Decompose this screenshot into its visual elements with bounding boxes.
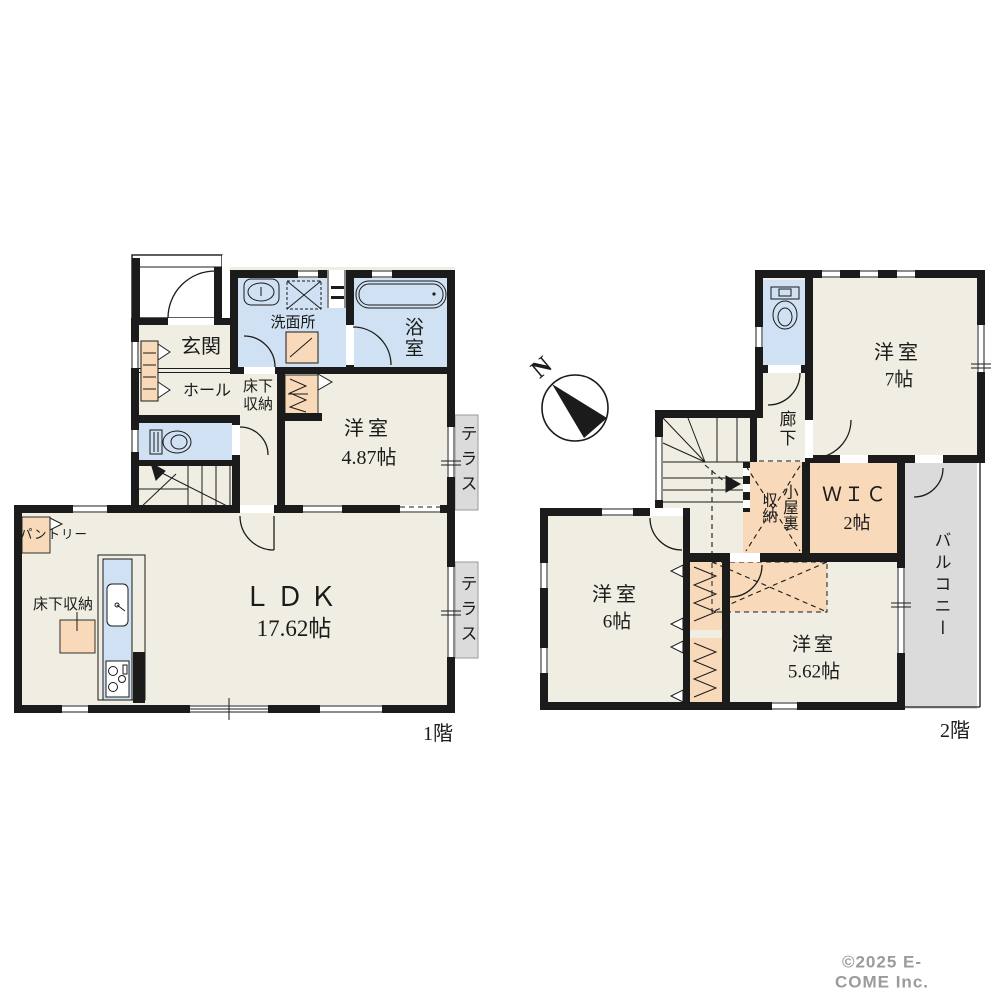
ldk-label: ＬＤＫ	[244, 581, 343, 613]
entrance-label: 玄関	[181, 335, 221, 359]
attic-storage-label: 小屋裏 収納	[757, 484, 799, 531]
floor-plan-page: 玄関 ホール 床下 収納 洗面所 浴室 洋室 4.87帖 ＬＤＫ 17.62帖 …	[0, 0, 1000, 1000]
porch	[132, 255, 222, 318]
wic-area	[802, 463, 905, 553]
bathroom-area	[348, 278, 448, 368]
western-room-7-label: 洋室	[874, 341, 922, 365]
kitchen-sink-icon	[107, 584, 128, 626]
underfloor-ldk-label: 床下収納	[33, 596, 93, 614]
toilet1-area	[139, 423, 232, 462]
washer-pan-icon	[286, 332, 318, 363]
western-room-562-size: 5.62帖	[788, 662, 840, 685]
western-room-6-label: 洋室	[592, 583, 640, 607]
stove-icon	[106, 661, 129, 697]
western-room-6-size: 6帖	[603, 612, 632, 635]
corridor-label: 廊下	[774, 410, 797, 448]
compass-icon	[542, 375, 608, 441]
copyright-text: ©2025 E-COME Inc.	[823, 953, 941, 994]
balcony-label: バルコニー	[929, 531, 952, 641]
floor2-name: 2階	[940, 719, 970, 743]
floor1-name: 1階	[423, 722, 453, 746]
ldk-size: 17.62帖	[257, 615, 332, 643]
wic-label: ＷＩＣ	[822, 483, 888, 507]
western-room-487-size: 4.87帖	[342, 446, 397, 470]
terrace-lower-label: テラス	[455, 575, 478, 650]
western-room-562-label: 洋室	[792, 635, 836, 658]
pantry-label: パントリー	[20, 528, 88, 543]
washroom-label: 洗面所	[270, 314, 315, 332]
terrace-upper-label: テラス	[455, 425, 478, 500]
western-room-7-size: 7帖	[885, 370, 914, 393]
western-room-487-label: 洋室	[344, 417, 392, 441]
bathroom-label: 浴室	[399, 317, 425, 359]
hall-label: ホール	[183, 381, 231, 400]
wic-size: 2帖	[844, 513, 871, 535]
underfloor-hall-label: 床下 収納	[243, 378, 273, 414]
